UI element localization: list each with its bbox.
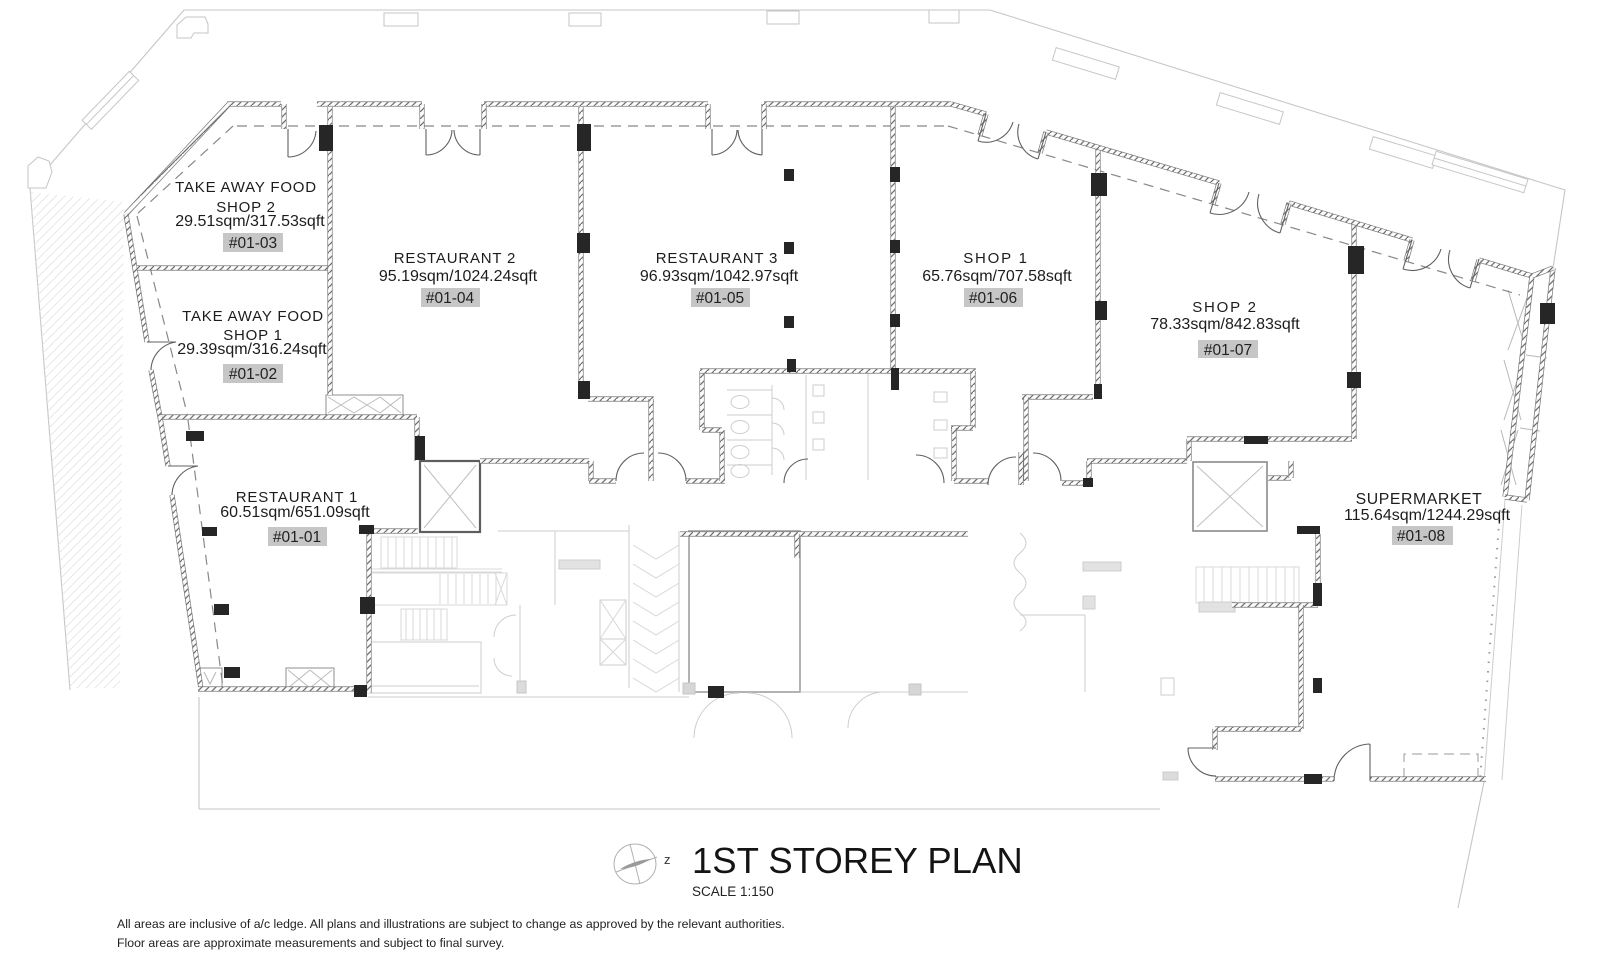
svg-text:RESTAURANT 3: RESTAURANT 3 (656, 250, 778, 267)
svg-text:SUPERMARKET: SUPERMARKET (1356, 491, 1483, 508)
svg-text:TAKE AWAY FOOD: TAKE AWAY FOOD (182, 308, 324, 325)
svg-text:#01-01: #01-01 (273, 529, 321, 546)
svg-text:29.51sqm/317.53sqft: 29.51sqm/317.53sqft (175, 213, 325, 230)
svg-text:60.51sqm/651.09sqft: 60.51sqm/651.09sqft (220, 504, 370, 521)
svg-text:95.19sqm/1024.24sqft: 95.19sqm/1024.24sqft (379, 268, 538, 285)
svg-text:1ST STOREY PLAN: 1ST STOREY PLAN (692, 840, 1023, 881)
svg-text:65.76sqm/707.58sqft: 65.76sqm/707.58sqft (922, 268, 1072, 285)
svg-text:115.64sqm/1244.29sqft: 115.64sqm/1244.29sqft (1344, 507, 1511, 524)
svg-text:#01-03: #01-03 (229, 235, 277, 252)
svg-text:Floor areas are approximate me: Floor areas are approximate measurements… (117, 936, 504, 950)
svg-text:SCALE 1:150: SCALE 1:150 (692, 884, 774, 899)
svg-text:#01-05: #01-05 (696, 290, 744, 307)
svg-text:All areas are inclusive of a/c: All areas are inclusive of a/c ledge. Al… (117, 917, 785, 931)
svg-text:29.39sqm/316.24sqft: 29.39sqm/316.24sqft (177, 341, 327, 358)
svg-text:#01-02: #01-02 (229, 366, 277, 383)
svg-text:RESTAURANT 2: RESTAURANT 2 (394, 250, 516, 267)
svg-text:78.33sqm/842.83sqft: 78.33sqm/842.83sqft (1150, 316, 1300, 333)
svg-text:#01-04: #01-04 (426, 290, 475, 307)
svg-text:SHOP 2: SHOP 2 (1192, 299, 1258, 316)
svg-text:#01-06: #01-06 (969, 290, 1017, 307)
svg-text:TAKE AWAY FOOD: TAKE AWAY FOOD (175, 179, 317, 196)
svg-text:#01-08: #01-08 (1397, 528, 1445, 545)
svg-text:SHOP 1: SHOP 1 (963, 250, 1029, 267)
svg-text:#01-07: #01-07 (1204, 342, 1252, 359)
svg-text:96.93sqm/1042.97sqft: 96.93sqm/1042.97sqft (640, 268, 799, 285)
svg-text:z: z (664, 852, 671, 867)
